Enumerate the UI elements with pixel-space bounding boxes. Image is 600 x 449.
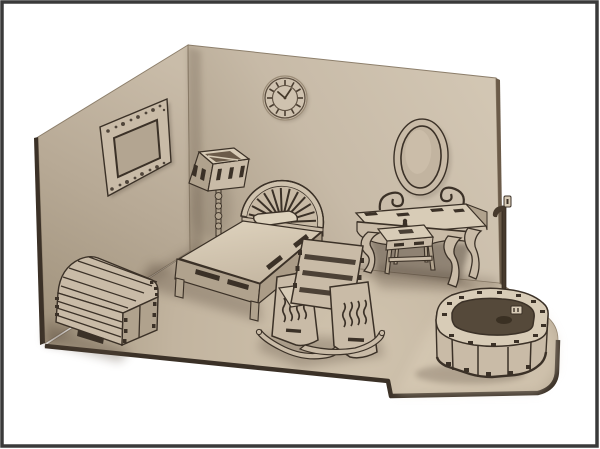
- pole-base-shadow: [496, 316, 512, 324]
- room-render: [0, 0, 600, 449]
- tub-interior: [452, 298, 534, 335]
- screenshot-canvas: [0, 0, 600, 449]
- lamp-pole: [215, 188, 222, 236]
- lamp-shade: [189, 148, 249, 191]
- tub-bracket: [511, 306, 522, 314]
